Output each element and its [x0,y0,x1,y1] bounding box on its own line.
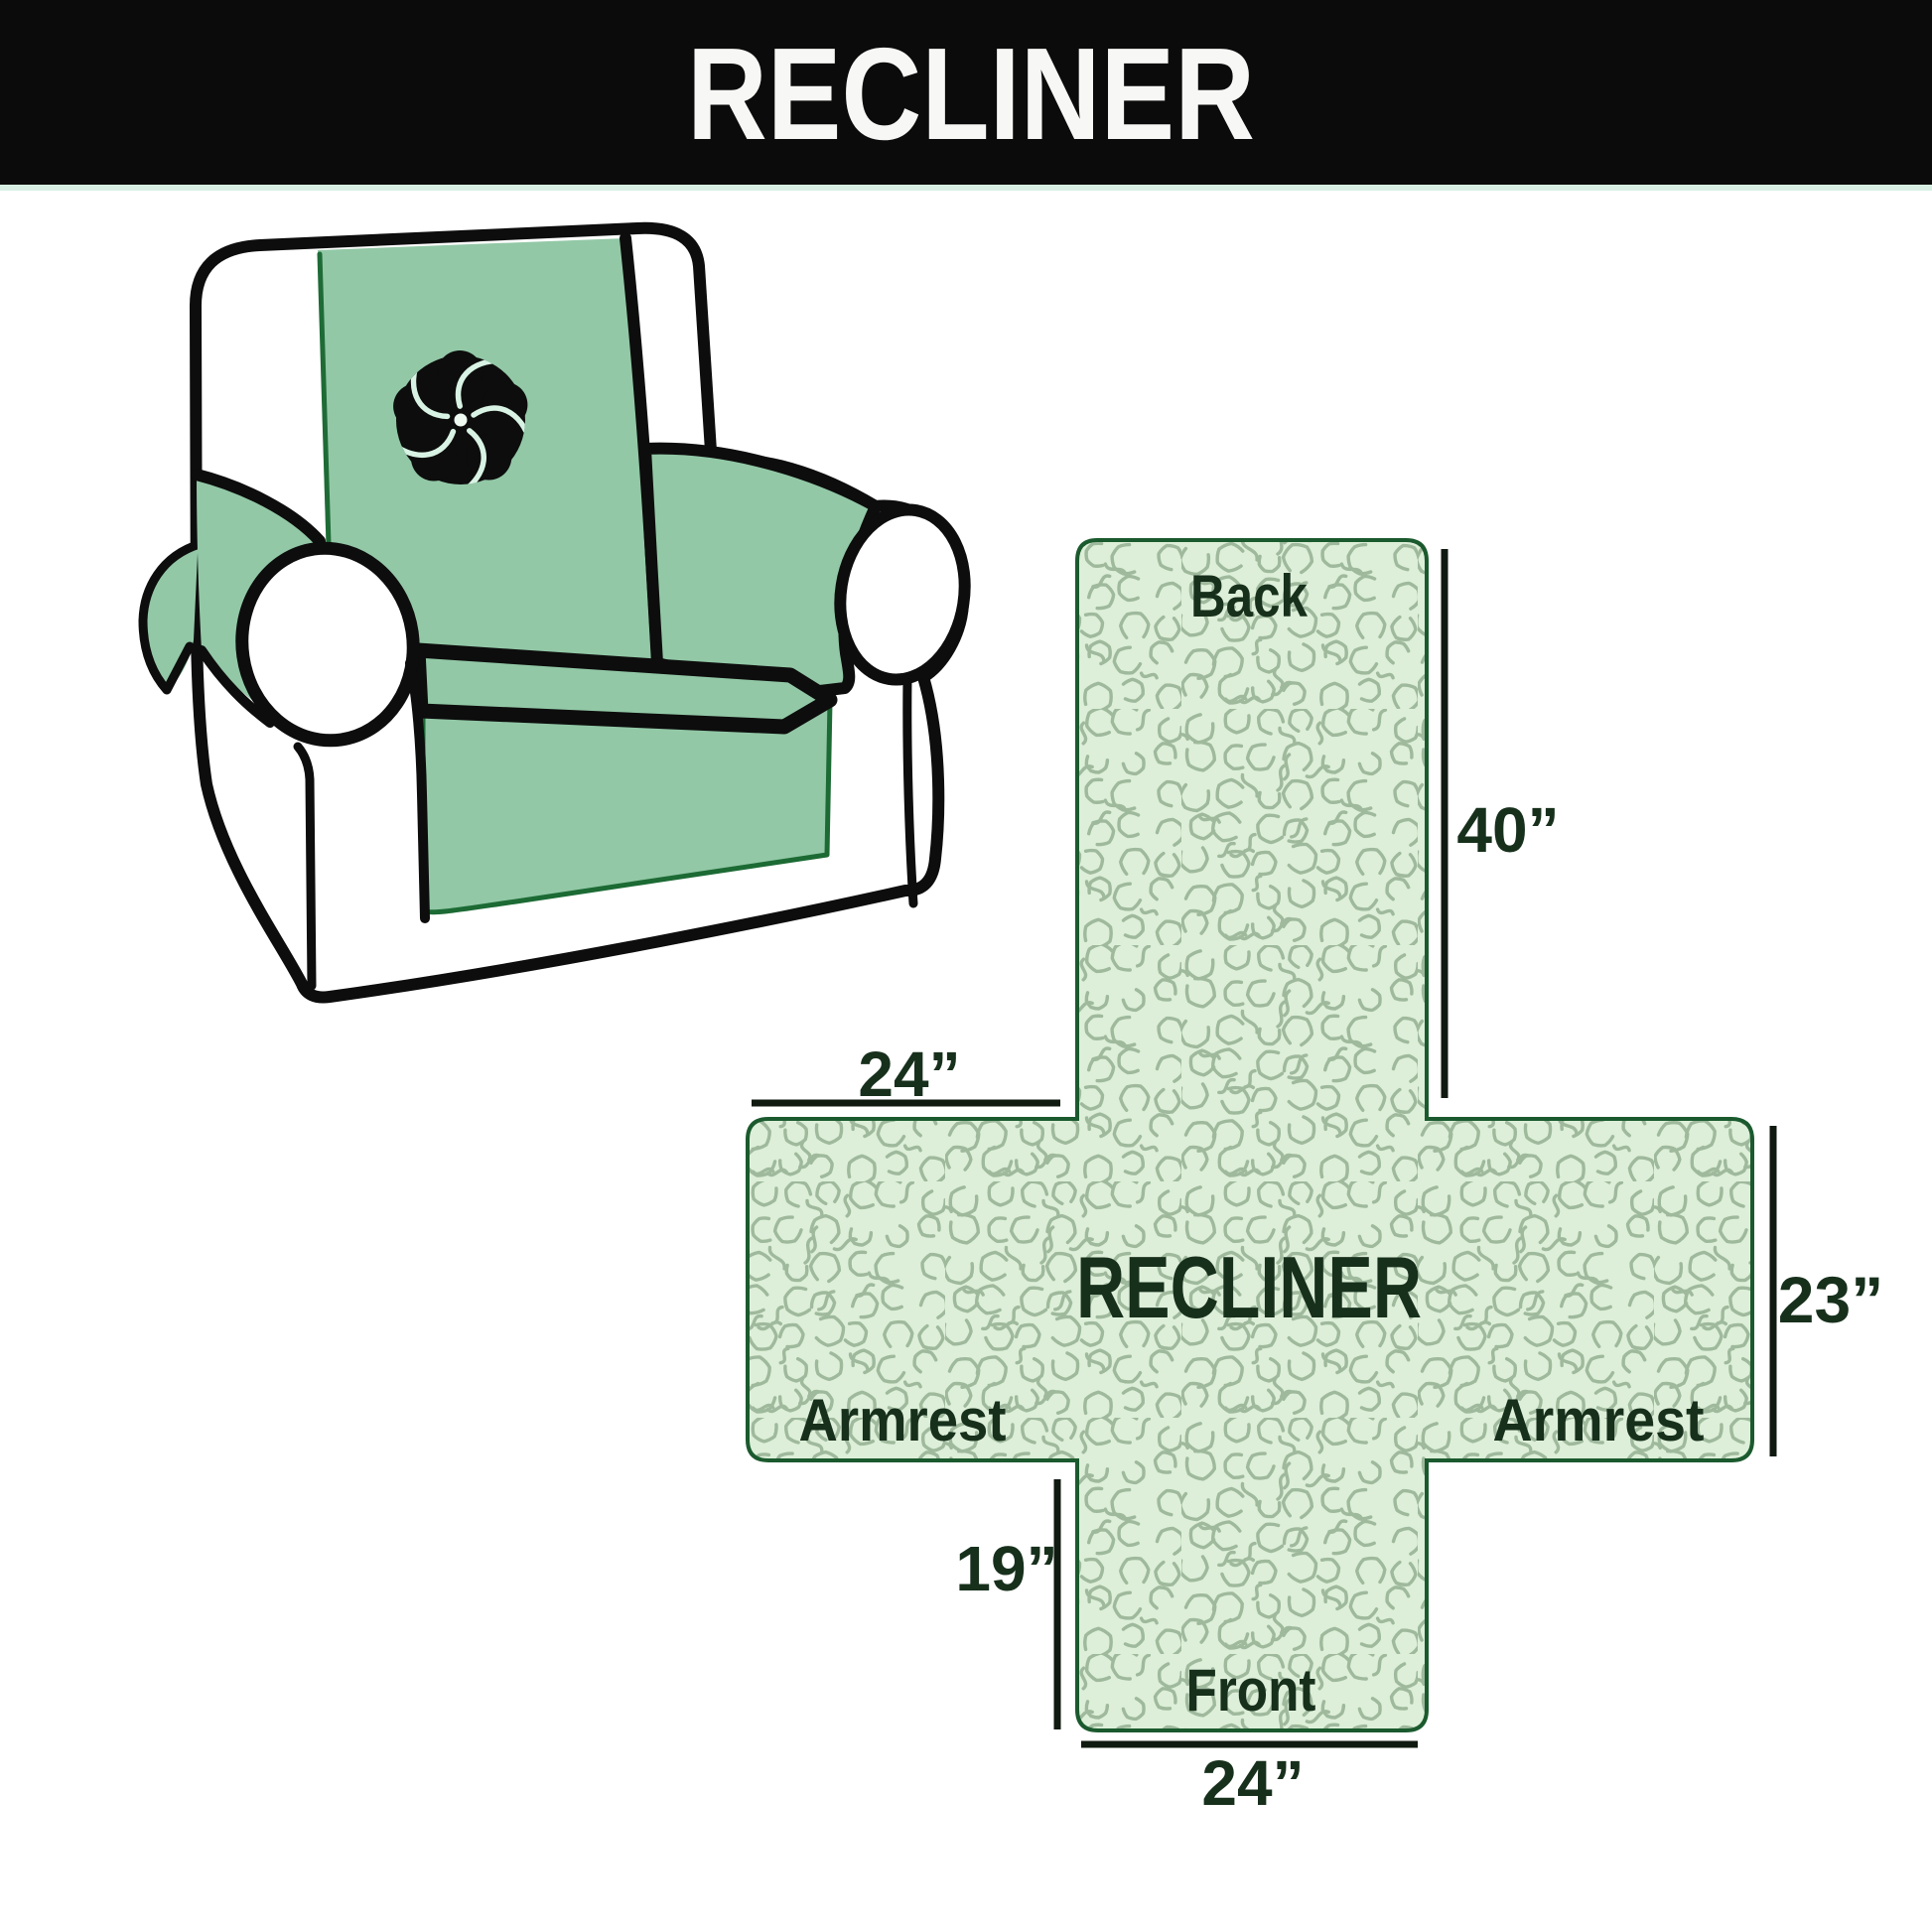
svg-text:Back: Back [1190,563,1309,629]
svg-text:40”: 40” [1456,794,1559,866]
svg-text:24”: 24” [858,1038,960,1110]
svg-text:24”: 24” [1201,1747,1304,1819]
svg-text:RECLINER: RECLINER [687,21,1255,167]
svg-text:Armrest: Armrest [1493,1387,1705,1453]
svg-text:Armrest: Armrest [799,1387,1007,1453]
svg-text:23”: 23” [1778,1263,1883,1336]
svg-text:19”: 19” [955,1533,1057,1604]
svg-text:Front: Front [1186,1657,1316,1724]
svg-text:RECLINER: RECLINER [1076,1238,1422,1336]
